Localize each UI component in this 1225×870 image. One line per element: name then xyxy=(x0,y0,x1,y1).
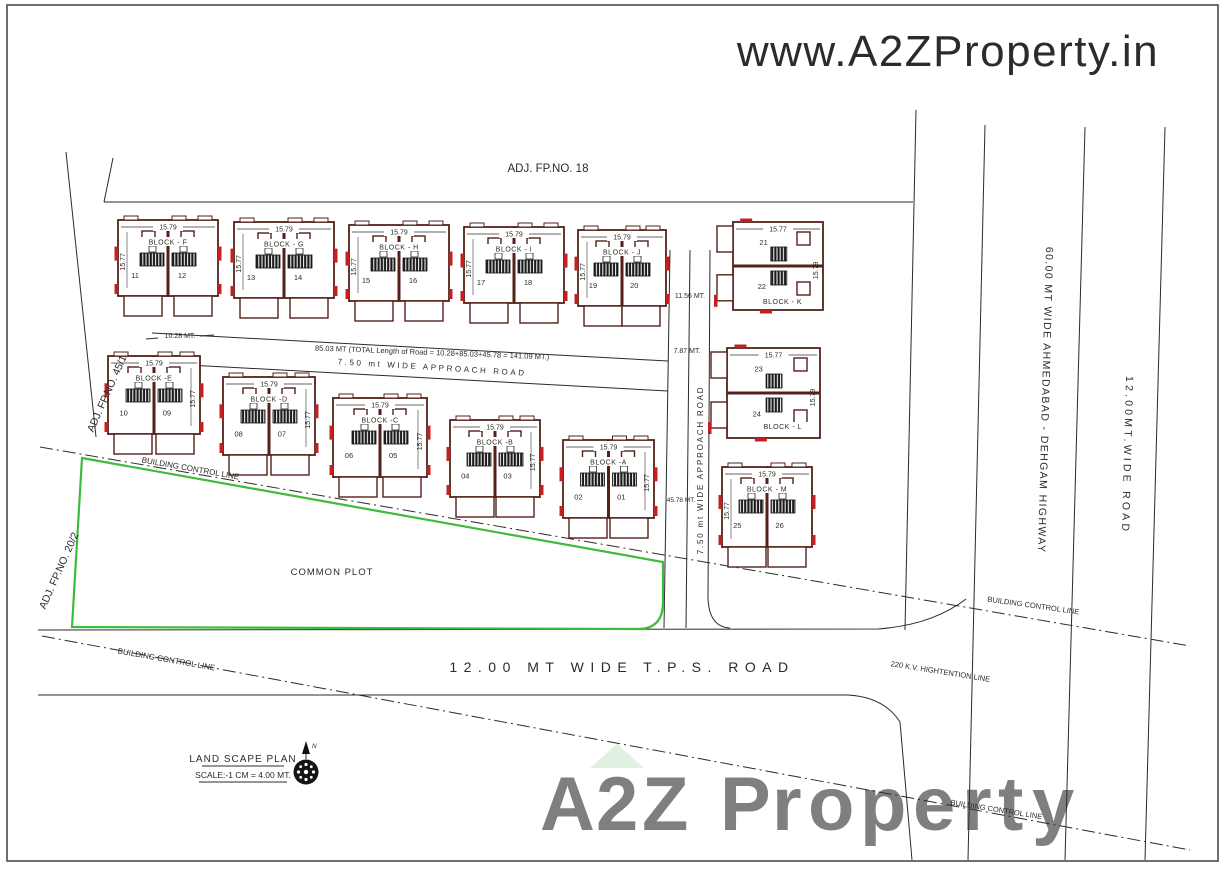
block-dim-side: 15.77 xyxy=(190,390,197,408)
block-dim-top: 15.79 xyxy=(159,225,177,232)
unit-number: 15 xyxy=(362,276,370,285)
block-dim-side: 15.77 xyxy=(351,258,358,276)
block-dim-top: 15.79 xyxy=(390,230,408,237)
watermark-letter: 2 xyxy=(596,762,638,847)
unit-number: 09 xyxy=(163,408,171,417)
block-label: BLOCK - I xyxy=(496,247,532,254)
unit-number: 14 xyxy=(294,273,302,282)
dim-45-78: 45.78 MT. xyxy=(667,497,696,504)
building-block-a: 15.7915.77BLOCK -A0201 xyxy=(560,436,658,538)
tps-road-label: 12.00 MT WIDE T.P.S. ROAD xyxy=(449,659,794,675)
unit-number: 10 xyxy=(119,408,127,417)
building-block-m: 15.7915.77BLOCK - M2526 xyxy=(719,463,816,567)
watermark-letter: t xyxy=(998,762,1023,847)
block-dim-side: 15.77 xyxy=(305,411,312,429)
adjacent-plot-top-label: ADJ. FP.NO. 18 xyxy=(508,163,589,175)
building-block-j: 15.7915.77BLOCK - J1920 xyxy=(575,226,670,326)
block-dim-top: 15.79 xyxy=(613,235,631,242)
building-block-c: 15.7915.77BLOCK -C0605 xyxy=(330,394,431,497)
unit-number: 24 xyxy=(753,409,761,418)
block-label: BLOCK - K xyxy=(763,299,802,306)
unit-number: 03 xyxy=(503,472,511,481)
wide-road-12-label: 12.00MT.WIDE ROAD xyxy=(1119,376,1135,535)
building-block-l: 15.7715.792324BLOCK - L xyxy=(708,345,820,442)
unit-number: 12 xyxy=(178,271,186,280)
block-label: BLOCK - J xyxy=(603,250,641,257)
landscape-plan-canvas: www.A2ZProperty.in 15.7915.77BLOCK - F11… xyxy=(0,0,1225,870)
unit-number: 13 xyxy=(247,273,255,282)
block-dim-side: 15.77 xyxy=(644,474,651,492)
block-dim-side: 15.77 xyxy=(724,502,731,520)
common-plot-label: COMMON PLOT xyxy=(291,567,374,578)
hightension-line-label: 220 K.V. HIGHTENTION LINE xyxy=(890,659,991,684)
watermark-bottom: A2ZProperty xyxy=(540,744,1074,847)
block-dim-side: 15.79 xyxy=(813,262,820,280)
building-block-g: 15.7915.77BLOCK - G1314 xyxy=(231,218,338,318)
block-dim-top: 15.77 xyxy=(765,353,783,360)
building-block-h: 15.7915.77BLOCK - H1516 xyxy=(346,221,453,321)
block-dim-side: 15.77 xyxy=(530,453,537,471)
legend-title: LAND SCAPE PLAN xyxy=(189,754,296,765)
watermark-letter: Z xyxy=(642,762,688,847)
block-dim-side: 15.77 xyxy=(120,253,127,271)
unit-number: 23 xyxy=(754,364,762,373)
legend-scale: SCALE:-1 CM = 4.00 MT. xyxy=(195,770,291,780)
north-label: N xyxy=(312,743,317,750)
unit-number: 26 xyxy=(775,521,783,530)
dim-11-56: 11.56 MT. xyxy=(675,293,705,300)
unit-number: 05 xyxy=(389,451,397,460)
block-dim-top: 15.77 xyxy=(769,227,787,234)
unit-number: 06 xyxy=(345,451,353,460)
watermark-letter: r xyxy=(772,762,802,847)
block-dim-side: 15.77 xyxy=(580,263,587,281)
dim-7-87: 7.87 MT. xyxy=(674,348,701,355)
block-label: BLOCK - L xyxy=(764,424,802,431)
unit-number: 11 xyxy=(131,271,139,280)
unit-number: 02 xyxy=(574,492,582,501)
block-label: BLOCK - H xyxy=(379,245,419,252)
watermark-letter: o xyxy=(808,762,854,847)
unit-number: 21 xyxy=(759,238,767,247)
approach-road-vertical-label: 7.50 mt WIDE APPROACH ROAD xyxy=(696,386,705,555)
legend: LAND SCAPE PLAN SCALE:-1 CM = 4.00 MT. xyxy=(189,754,296,782)
control-line-label-lower-left: BUILDING CONTROL LINE xyxy=(117,647,216,673)
watermark-letter: e xyxy=(913,762,955,847)
block-label: BLOCK -D xyxy=(250,397,287,404)
building-block-i: 15.7915.77BLOCK - I1718 xyxy=(461,223,568,323)
block-dim-top: 15.79 xyxy=(371,403,389,410)
block-dim-top: 15.79 xyxy=(260,382,278,389)
unit-number: 08 xyxy=(234,429,242,438)
block-dim-top: 15.79 xyxy=(600,445,618,452)
north-compass: N xyxy=(294,741,319,785)
unit-number: 19 xyxy=(589,281,597,290)
building-block-d: 15.7915.77BLOCK -D0807 xyxy=(220,373,319,475)
watermark-letter: y xyxy=(1032,762,1074,847)
block-label: BLOCK -A xyxy=(590,460,627,467)
block-dim-top: 15.79 xyxy=(145,361,163,368)
highway-label: 60.00 MT WIDE AHMEDABAD - DEHGAM HIGHWAY xyxy=(1035,247,1055,554)
building-block-b: 15.7915.77BLOCK -B0403 xyxy=(447,416,544,517)
block-dim-side: 15.77 xyxy=(417,433,424,451)
block-dim-side: 15.77 xyxy=(466,260,473,278)
unit-number: 07 xyxy=(278,429,286,438)
block-label: BLOCK - G xyxy=(264,242,304,249)
block-label: BLOCK - M xyxy=(747,487,787,494)
watermark-letter: A xyxy=(540,762,595,847)
block-dim-top: 15.79 xyxy=(505,232,523,239)
unit-number: 18 xyxy=(524,278,532,287)
block-label: BLOCK - F xyxy=(149,240,188,247)
watermark-letter: P xyxy=(720,762,771,847)
block-dim-top: 15.79 xyxy=(758,472,776,479)
watermark-top: www.A2ZProperty.in xyxy=(736,27,1159,76)
block-dim-top: 15.79 xyxy=(275,227,293,234)
unit-number: 22 xyxy=(758,282,766,291)
block-dim-side: 15.77 xyxy=(236,255,243,273)
watermark-letter: r xyxy=(962,762,992,847)
unit-number: 16 xyxy=(409,276,417,285)
block-dim-top: 15.79 xyxy=(486,425,504,432)
unit-number: 25 xyxy=(733,521,741,530)
building-block-k: 15.7715.792122BLOCK - K xyxy=(714,219,823,314)
block-label: BLOCK -C xyxy=(361,418,398,425)
block-dim-side: 15.79 xyxy=(810,389,817,407)
unit-number: 01 xyxy=(617,492,625,501)
site-plan-drawing: www.A2ZProperty.in 15.7915.77BLOCK - F11… xyxy=(0,0,1225,870)
block-label: BLOCK -E xyxy=(136,376,173,383)
block-label: BLOCK -B xyxy=(477,440,514,447)
dim-10-28: 10.28 MT. xyxy=(165,333,196,340)
unit-number: 20 xyxy=(630,281,638,290)
unit-number: 17 xyxy=(477,278,485,287)
building-block-f: 15.7915.77BLOCK - F1112 xyxy=(115,216,222,316)
watermark-letter: p xyxy=(860,762,906,847)
unit-number: 04 xyxy=(461,472,469,481)
north-arrow-icon xyxy=(302,741,310,754)
blocks-layer: 15.7915.77BLOCK - F111215.7915.77BLOCK -… xyxy=(105,216,824,567)
